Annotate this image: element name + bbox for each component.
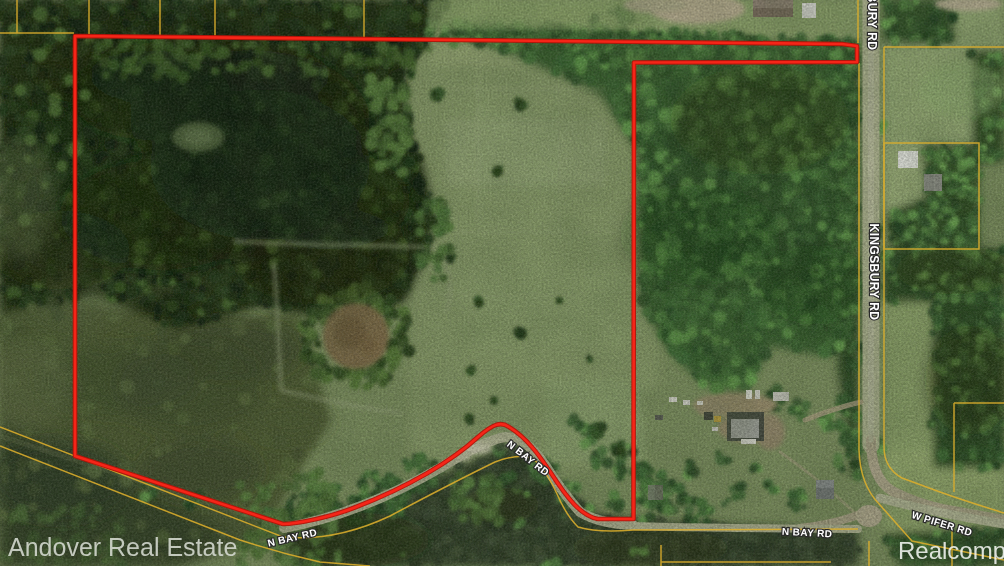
svg-text:BURY RD: BURY RD xyxy=(865,0,879,50)
svg-text:Andover Real Estate: Andover Real Estate xyxy=(8,533,237,561)
svg-text:Realcomp: Realcomp xyxy=(898,537,1004,564)
svg-text:KINGSBURY RD: KINGSBURY RD xyxy=(867,224,881,321)
